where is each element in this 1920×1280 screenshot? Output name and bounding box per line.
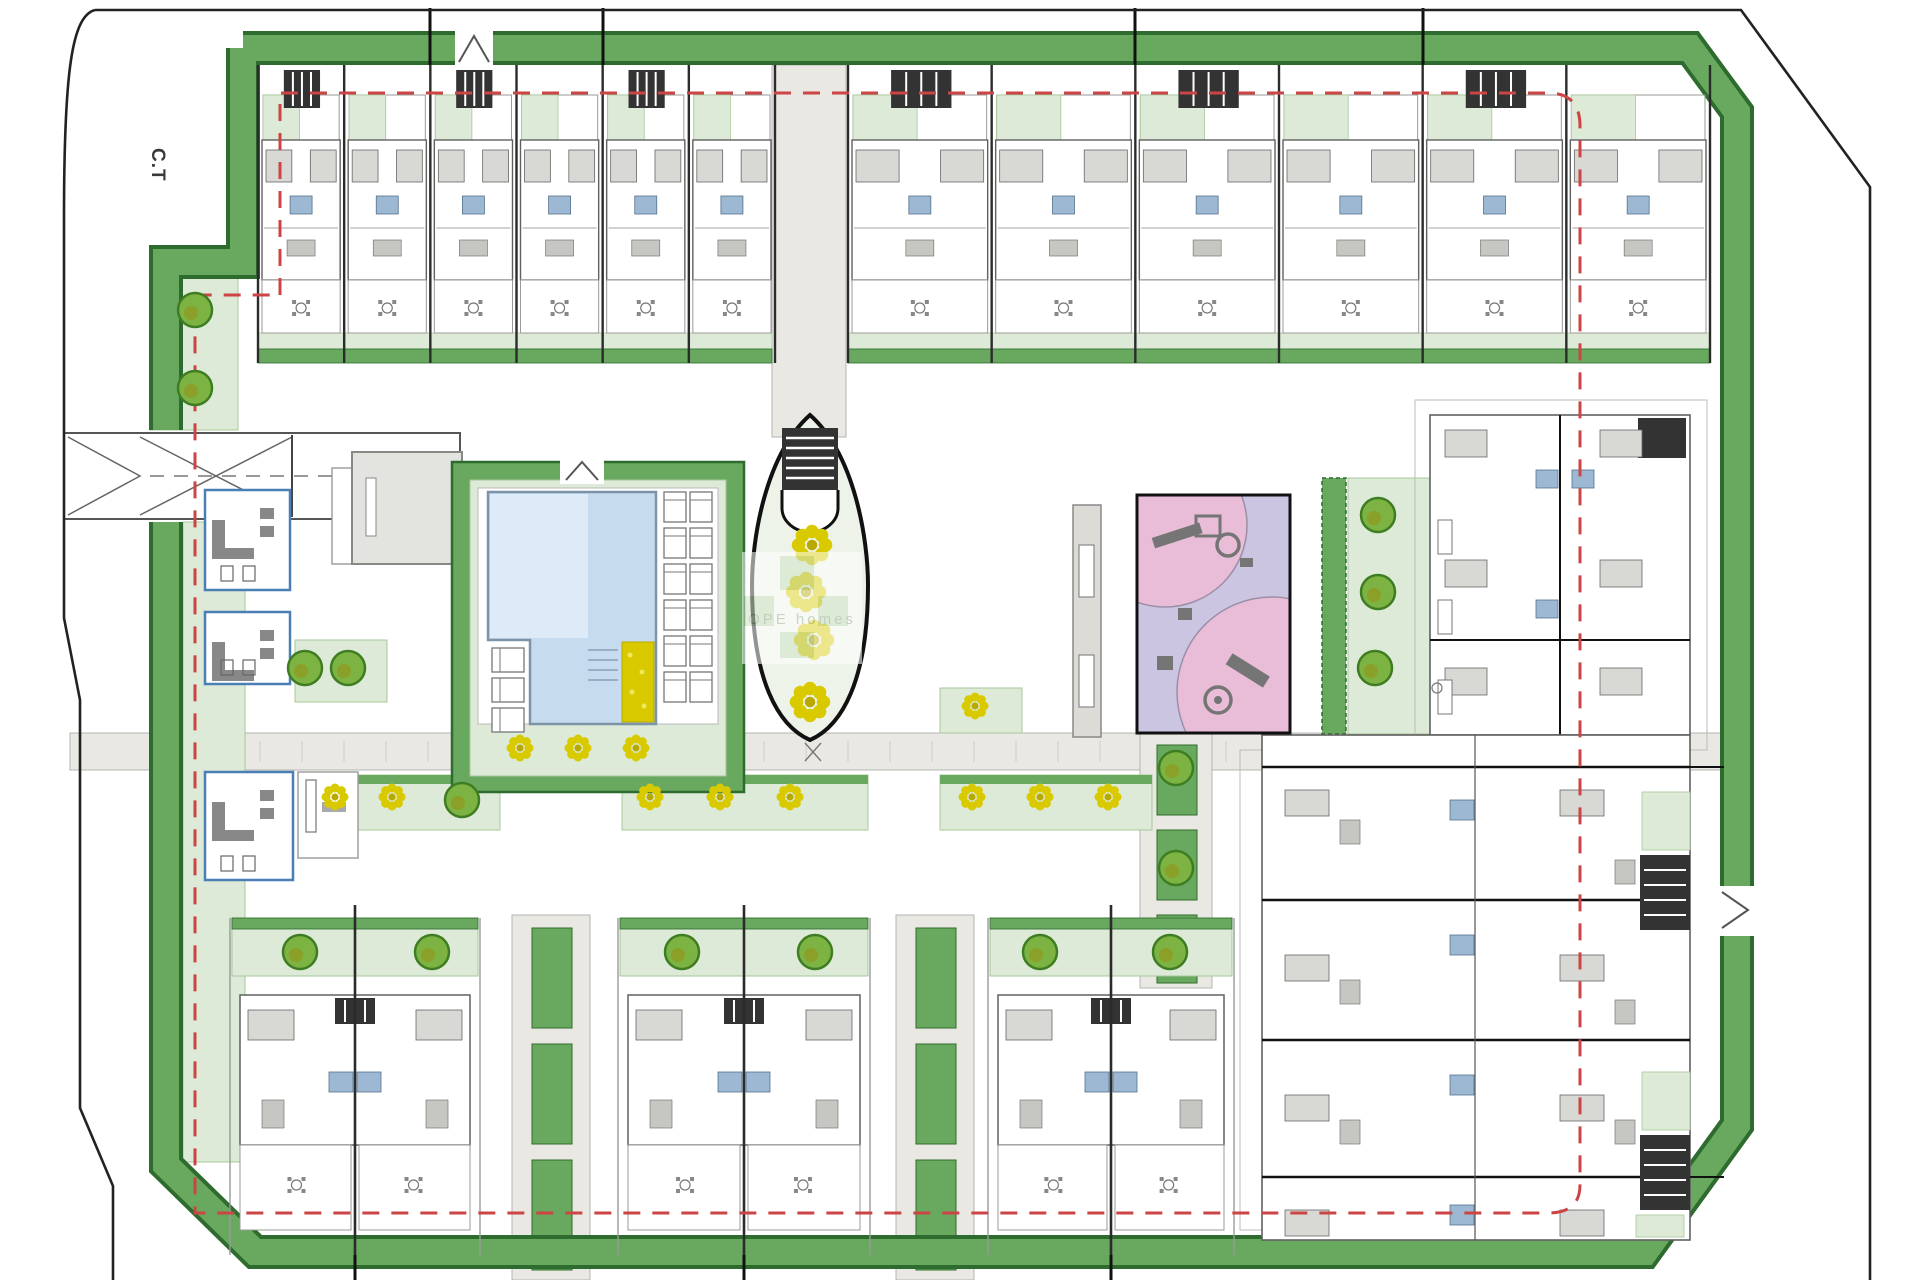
play-equipment-icon (1240, 558, 1253, 567)
terrace-chair (1058, 1189, 1062, 1193)
sofa (1624, 240, 1652, 256)
sun-lounger (690, 492, 712, 522)
duplex-unit (603, 65, 685, 363)
terrace (348, 280, 426, 333)
balcony-lounger (1438, 680, 1452, 714)
play-equipment-icon (1214, 696, 1222, 704)
tree-icon (415, 935, 449, 969)
terrace-chair (1160, 1177, 1164, 1181)
office-room (205, 772, 293, 880)
terrace-chair (1198, 312, 1202, 316)
sofa (1340, 1120, 1360, 1144)
right-hedge (1322, 478, 1346, 734)
tree-shade (289, 948, 303, 962)
petal (813, 686, 827, 700)
terrace-chair (301, 1189, 305, 1193)
terrace-chair (392, 312, 396, 316)
terrace (607, 280, 685, 333)
tree-icon (178, 293, 212, 327)
petal (394, 786, 403, 795)
bathroom (718, 1072, 742, 1092)
bathroom (1450, 1205, 1474, 1225)
bed (741, 150, 767, 182)
bathroom (329, 1072, 353, 1092)
terrace-chair (405, 1177, 409, 1181)
duplex-unit (1423, 65, 1563, 363)
tree-icon (178, 371, 212, 405)
terrace-chair (1160, 1189, 1164, 1193)
cabinet (260, 648, 274, 659)
petal (522, 737, 531, 746)
terrace-chair (419, 1189, 423, 1193)
bed (1445, 430, 1487, 457)
terrace-chair (1044, 1189, 1048, 1193)
sun-lounger (492, 708, 524, 732)
watermark-logo-square (780, 556, 814, 590)
terrace-chair (565, 312, 569, 316)
bathroom (746, 1072, 770, 1092)
sofa (1193, 240, 1221, 256)
sofa (1020, 1100, 1042, 1128)
tree-icon (1361, 498, 1395, 532)
bed (1600, 560, 1642, 587)
petal (337, 786, 346, 795)
terrace-outline (1240, 750, 1262, 1230)
site-plan-svg: OPE homes C.T (0, 0, 1920, 1280)
sofa (1481, 240, 1509, 256)
petal (652, 786, 661, 795)
sun-lounger (492, 648, 524, 672)
terrace-chair (1486, 312, 1490, 316)
tree-icon (665, 935, 699, 969)
duplex-unit (689, 65, 771, 363)
corridor-green-median (532, 1044, 572, 1144)
corridor-green-median (916, 1044, 956, 1144)
duplex-unit (1279, 65, 1419, 363)
flower-icon (507, 735, 534, 762)
flower-center (1105, 794, 1112, 801)
sofa (1615, 860, 1635, 884)
bed (1445, 560, 1487, 587)
bed (525, 150, 551, 182)
tree-icon (1159, 851, 1193, 885)
pool-shallow-end (490, 494, 588, 638)
playground-pink-mound (1083, 443, 1247, 607)
tree-shade (1367, 588, 1381, 602)
duplex-unit (517, 65, 599, 363)
bathroom (1536, 600, 1558, 618)
terrace-chair (1356, 300, 1360, 304)
bed (856, 150, 899, 182)
sun-lounger (690, 600, 712, 630)
bed (1515, 150, 1558, 182)
sofa (718, 240, 746, 256)
bed (1006, 1010, 1052, 1040)
bed (697, 150, 723, 182)
bathroom (549, 196, 571, 214)
terrace-chair (808, 1189, 812, 1193)
right-apartment-block (1240, 400, 1724, 1240)
flower-icon (707, 784, 734, 811)
terrace (998, 1145, 1107, 1230)
flower-center (517, 745, 524, 752)
sofa (1050, 240, 1078, 256)
yellow-planter (622, 642, 654, 722)
terrace (1427, 280, 1563, 333)
bathroom (721, 196, 743, 214)
terrace-chair (292, 300, 296, 304)
planter-dot (630, 690, 635, 695)
top-row-lawn-strip (258, 333, 772, 349)
terrace-chair (651, 312, 655, 316)
play-equipment-icon (1178, 608, 1192, 620)
bed (1285, 1095, 1329, 1121)
terrace-chair (306, 312, 310, 316)
balcony-lounger (1438, 600, 1452, 634)
tree-icon (1153, 935, 1187, 969)
flower-center (969, 794, 976, 801)
planter-dot (642, 704, 647, 709)
tree-icon (1023, 935, 1057, 969)
tree-icon (331, 651, 365, 685)
flower-center (1037, 794, 1044, 801)
duplex-unit (344, 65, 426, 363)
terrace-chair (637, 300, 641, 304)
desk (212, 642, 225, 674)
transformer-label: C.T (147, 148, 168, 182)
tree-icon (1361, 575, 1395, 609)
flower-center (647, 794, 654, 801)
bathroom (1450, 1075, 1474, 1095)
terrace (521, 280, 599, 333)
stair-core (1640, 855, 1690, 930)
flower-center (389, 794, 396, 801)
sun-lounger (492, 678, 524, 702)
terrace-chair (690, 1177, 694, 1181)
office-room (205, 490, 290, 590)
petal (638, 737, 647, 746)
bed (1372, 150, 1415, 182)
planter-dot (640, 670, 645, 675)
terrace-chair (1198, 300, 1202, 304)
bed (1000, 150, 1043, 182)
terrace-chair (1055, 312, 1059, 316)
bathroom (290, 196, 312, 214)
tree-shade (1165, 864, 1179, 878)
bed (396, 150, 422, 182)
tree-icon (1358, 651, 1392, 685)
sofa (1615, 1120, 1635, 1144)
pool-area (452, 458, 744, 792)
sofa (546, 240, 574, 256)
petal (974, 786, 983, 795)
terrace-chair (1643, 300, 1647, 304)
duplex-unit (258, 65, 340, 363)
bed (1287, 150, 1330, 182)
duplex-unit (848, 65, 988, 363)
terrace-chair (287, 1189, 291, 1193)
terrace (262, 280, 340, 333)
cabinet (260, 790, 274, 801)
bed (248, 1010, 294, 1040)
sofa (262, 1100, 284, 1128)
door-slot (366, 478, 376, 536)
flower-icon (959, 784, 986, 811)
flower-icon (1095, 784, 1122, 811)
tree-shade (671, 948, 685, 962)
bed (1143, 150, 1186, 182)
tree-shade (1029, 948, 1043, 962)
terrace-chair (925, 300, 929, 304)
bathroom (1450, 935, 1474, 955)
bathroom (1340, 196, 1362, 214)
petal (792, 786, 801, 795)
tree-shade (337, 664, 351, 678)
cabinet (260, 630, 274, 641)
terrace-chair (794, 1189, 798, 1193)
boundary-line-left (64, 10, 113, 1280)
site-plan: OPE homes C.T (0, 0, 1920, 1280)
block-lawn-patch (1636, 1215, 1684, 1237)
flower-icon (1027, 784, 1054, 811)
sun-lounger (690, 672, 712, 702)
bed (1228, 150, 1271, 182)
terrace-chair (405, 1189, 409, 1193)
terrace (852, 280, 988, 333)
terrace-chair (651, 300, 655, 304)
petal (1110, 786, 1119, 795)
watermark-text: OPE homes (748, 611, 856, 628)
terrace-chair (1212, 312, 1216, 316)
bed (483, 150, 509, 182)
tree-shade (1367, 511, 1381, 525)
desk (212, 520, 225, 552)
terrace (1115, 1145, 1224, 1230)
flower-center (575, 745, 582, 752)
duplex-unit (992, 65, 1132, 363)
sofa (459, 240, 487, 256)
bench-seat (1079, 655, 1094, 707)
bed (569, 150, 595, 182)
terrace-chair (1212, 300, 1216, 304)
bathroom (1113, 1072, 1137, 1092)
terrace-chair (1500, 300, 1504, 304)
duplex-unit (1135, 65, 1275, 363)
sofa (1340, 980, 1360, 1004)
bathroom (1484, 196, 1506, 214)
sofa (1180, 1100, 1202, 1128)
bed (636, 1010, 682, 1040)
sofa (816, 1100, 838, 1128)
terrace (996, 280, 1132, 333)
petal (1042, 786, 1051, 795)
terrace (240, 1145, 351, 1230)
terrace-chair (478, 300, 482, 304)
bathroom (1053, 196, 1075, 214)
bed (1170, 1010, 1216, 1040)
terrace (359, 1145, 470, 1230)
block-lawn-patch (1642, 792, 1690, 850)
bathroom (462, 196, 484, 214)
terrace (1139, 280, 1275, 333)
bathroom (1085, 1072, 1109, 1092)
stair-core (1638, 418, 1686, 458)
corridor-green-median (916, 928, 956, 1028)
tree-shade (294, 664, 308, 678)
bed (1560, 790, 1604, 816)
planter-dot (628, 653, 633, 658)
top-row-green-strip (258, 349, 772, 363)
central-walkway (772, 65, 846, 437)
store-room (298, 772, 358, 858)
bed (352, 150, 378, 182)
terrace-chair (1629, 300, 1633, 304)
bed (941, 150, 984, 182)
desk (212, 548, 254, 559)
tree-shade (184, 384, 198, 398)
terrace-chair (419, 1177, 423, 1181)
terrace-chair (808, 1177, 812, 1181)
bathroom (1196, 196, 1218, 214)
terrace (1570, 280, 1706, 333)
terrace-chair (690, 1189, 694, 1193)
bed (806, 1010, 852, 1040)
terrace (628, 1145, 740, 1230)
bed (611, 150, 637, 182)
terrace-chair (1500, 312, 1504, 316)
sun-lounger (690, 528, 712, 558)
corridor-green-median (532, 928, 572, 1028)
sun-lounger (664, 600, 686, 630)
tree-shade (421, 948, 435, 962)
flower-icon (565, 735, 592, 762)
bench-seat (1079, 545, 1094, 597)
terrace-chair (737, 300, 741, 304)
flower-icon (322, 784, 349, 811)
sun-lounger (690, 564, 712, 594)
office-room (205, 612, 290, 684)
flower-center (787, 794, 794, 801)
flower-bed-edge (940, 775, 1152, 784)
terrace-chair (637, 312, 641, 316)
tree-icon (1159, 751, 1193, 785)
sofa (1340, 820, 1360, 844)
terrace-chair (676, 1177, 680, 1181)
sun-lounger (664, 564, 686, 594)
terrace (1283, 280, 1419, 333)
bathroom (1450, 800, 1474, 820)
bed (416, 1010, 462, 1040)
terrace-chair (1342, 312, 1346, 316)
terrace-chair (1069, 312, 1073, 316)
cabinet (260, 508, 274, 519)
terrace-chair (911, 300, 915, 304)
bathroom (1536, 470, 1558, 488)
terrace-chair (1174, 1177, 1178, 1181)
terrace-chair (378, 312, 382, 316)
petal (580, 737, 589, 746)
sofa (373, 240, 401, 256)
sun-lounger (664, 528, 686, 558)
flower-icon (637, 784, 664, 811)
bathroom (357, 1072, 381, 1092)
flower-center (972, 703, 979, 710)
bed (1600, 430, 1642, 457)
terrace-chair (1486, 300, 1490, 304)
terrace-chair (911, 312, 915, 316)
bed (1560, 955, 1604, 981)
tree-icon (288, 651, 322, 685)
bathroom (1627, 196, 1649, 214)
duplex-unit (430, 65, 512, 363)
sun-lounger (690, 636, 712, 666)
watermark: OPE homes (742, 552, 862, 664)
terrace-chair (1069, 300, 1073, 304)
terrace-chair (676, 1189, 680, 1193)
sofa (426, 1100, 448, 1128)
tree-shade (451, 796, 465, 810)
terrace-chair (378, 300, 382, 304)
petal (977, 695, 986, 704)
tree-shade (1159, 948, 1173, 962)
terrace (434, 280, 512, 333)
bed (1560, 1210, 1604, 1236)
terrace-chair (1044, 1177, 1048, 1181)
terrace-chair (301, 1177, 305, 1181)
sofa (632, 240, 660, 256)
tree-icon (283, 935, 317, 969)
terrace-chair (1629, 312, 1633, 316)
terrace-chair (1643, 312, 1647, 316)
bathroom (376, 196, 398, 214)
tree-shade (184, 306, 198, 320)
terrace-chair (551, 312, 555, 316)
annex (332, 468, 352, 564)
sun-lounger (664, 636, 686, 666)
block-lawn-patch (1642, 1072, 1690, 1130)
terrace-chair (478, 312, 482, 316)
tree-shade (804, 948, 818, 962)
terrace-chair (306, 300, 310, 304)
flower-icon (962, 693, 989, 720)
bed (1600, 668, 1642, 695)
terrace-chair (737, 312, 741, 316)
bed (1431, 150, 1474, 182)
terrace-chair (464, 300, 468, 304)
terrace-chair (565, 300, 569, 304)
stair-core (1640, 1135, 1690, 1210)
bathroom (635, 196, 657, 214)
sofa (650, 1100, 672, 1128)
bed (1659, 150, 1702, 182)
sofa (287, 240, 315, 256)
petal (722, 786, 731, 795)
terrace-chair (1174, 1189, 1178, 1193)
tree-shade (1364, 664, 1378, 678)
terrace-chair (551, 300, 555, 304)
flower-center (717, 794, 724, 801)
sun-lounger (664, 492, 686, 522)
terrace-chair (723, 312, 727, 316)
sofa (1615, 1000, 1635, 1024)
flower-icon (379, 784, 406, 811)
terrace-chair (1058, 1177, 1062, 1181)
sun-lounger (664, 672, 686, 702)
desk (212, 830, 254, 841)
bed (310, 150, 336, 182)
sofa (906, 240, 934, 256)
flower-icon (623, 735, 650, 762)
